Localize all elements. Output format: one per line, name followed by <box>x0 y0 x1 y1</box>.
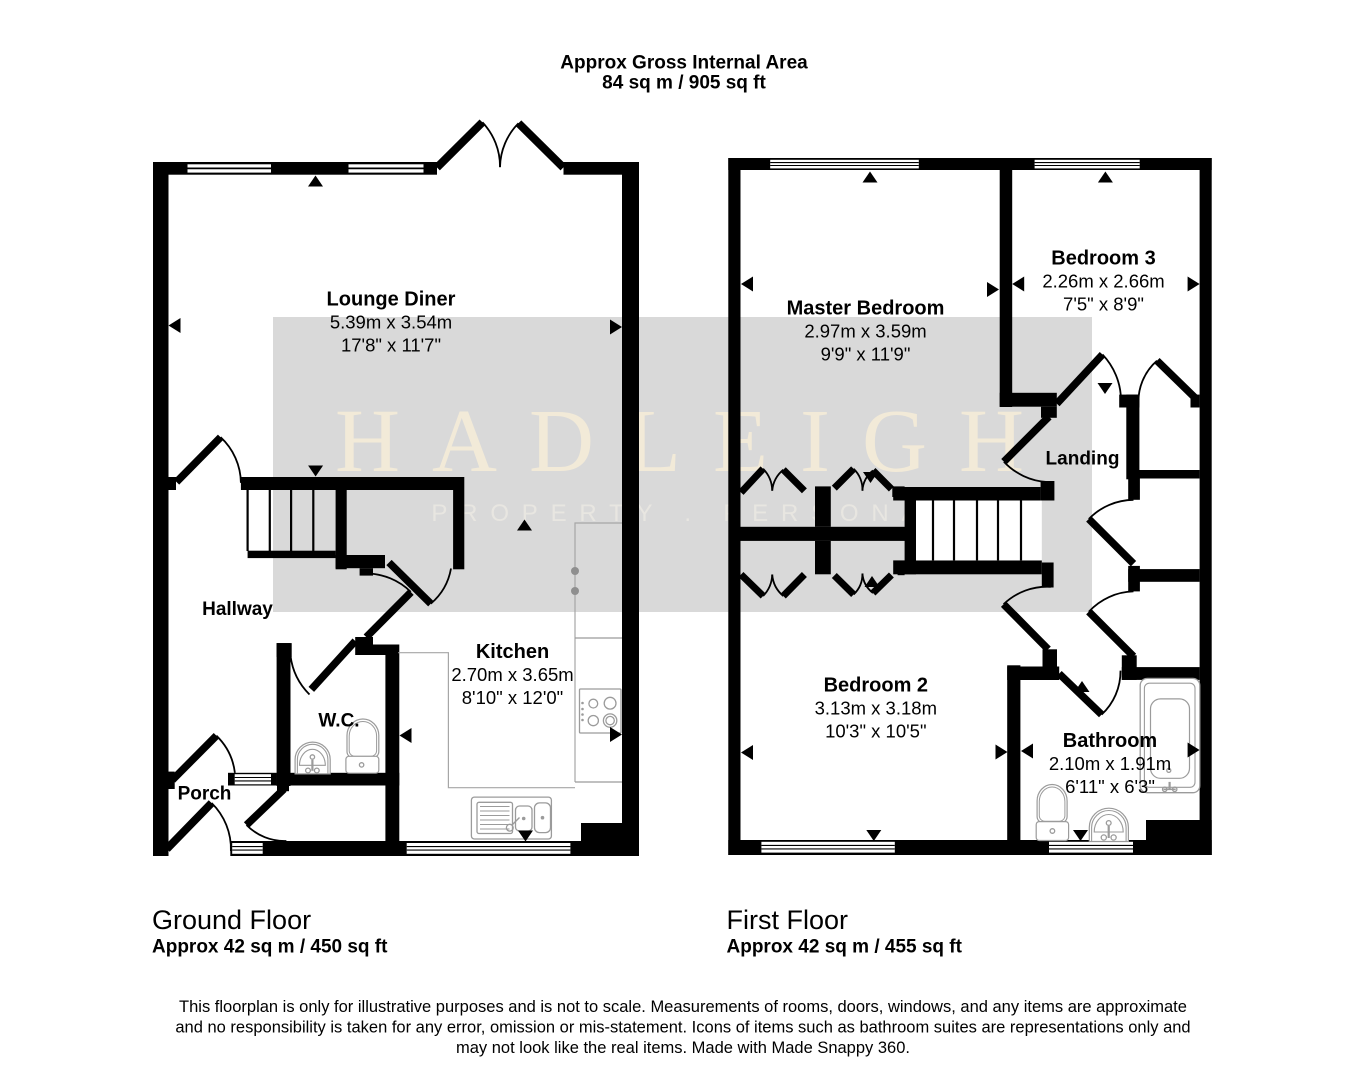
svg-text:5.39m x 3.54m: 5.39m x 3.54m <box>330 312 452 333</box>
svg-text:Ground Floor: Ground Floor <box>152 905 311 935</box>
svg-text:Approx 42 sq m / 455 sq ft: Approx 42 sq m / 455 sq ft <box>727 937 963 958</box>
svg-text:6'11" x 6'3": 6'11" x 6'3" <box>1065 776 1155 797</box>
svg-text:2.10m x 1.91m: 2.10m x 1.91m <box>1049 753 1171 774</box>
svg-text:Hallway: Hallway <box>202 599 273 620</box>
svg-text:W.C.: W.C. <box>318 711 359 732</box>
svg-text:Porch: Porch <box>178 784 232 805</box>
svg-text:and no responsibility is taken: and no responsibility is taken for any e… <box>175 1018 1190 1036</box>
svg-text:Bedroom 3: Bedroom 3 <box>1051 248 1155 270</box>
svg-text:Approx Gross Internal Area: Approx Gross Internal Area <box>560 53 808 74</box>
svg-text:Bathroom: Bathroom <box>1063 730 1157 752</box>
svg-text:Master Bedroom: Master Bedroom <box>787 298 945 320</box>
svg-text:8'10" x 12'0": 8'10" x 12'0" <box>462 687 563 708</box>
svg-text:First Floor: First Floor <box>727 905 849 935</box>
svg-text:Kitchen: Kitchen <box>476 641 549 663</box>
svg-text:may not look like the real ite: may not look like the real items. Made w… <box>456 1039 910 1057</box>
svg-text:This floorplan is only for ill: This floorplan is only for illustrative … <box>179 998 1187 1016</box>
svg-text:Landing: Landing <box>1046 449 1120 470</box>
svg-text:HADLEIGH: HADLEIGH <box>335 392 1056 491</box>
svg-text:Approx 42 sq m / 450 sq ft: Approx 42 sq m / 450 sq ft <box>152 937 388 958</box>
svg-text:84 sq m / 905 sq ft: 84 sq m / 905 sq ft <box>602 73 766 94</box>
svg-text:9'9" x 11'9": 9'9" x 11'9" <box>821 344 911 365</box>
svg-text:Bedroom 2: Bedroom 2 <box>824 675 928 697</box>
svg-text:10'3" x 10'5": 10'3" x 10'5" <box>825 721 926 742</box>
svg-text:2.97m x 3.59m: 2.97m x 3.59m <box>804 321 926 342</box>
svg-text:3.13m x 3.18m: 3.13m x 3.18m <box>815 698 937 719</box>
svg-text:2.26m x 2.66m: 2.26m x 2.66m <box>1042 271 1164 292</box>
svg-text:7'5" x 8'9": 7'5" x 8'9" <box>1063 294 1144 315</box>
svg-text:17'8" x 11'7": 17'8" x 11'7" <box>341 335 441 356</box>
svg-text:Lounge Diner: Lounge Diner <box>327 289 456 311</box>
svg-text:2.70m x 3.65m: 2.70m x 3.65m <box>451 664 573 685</box>
